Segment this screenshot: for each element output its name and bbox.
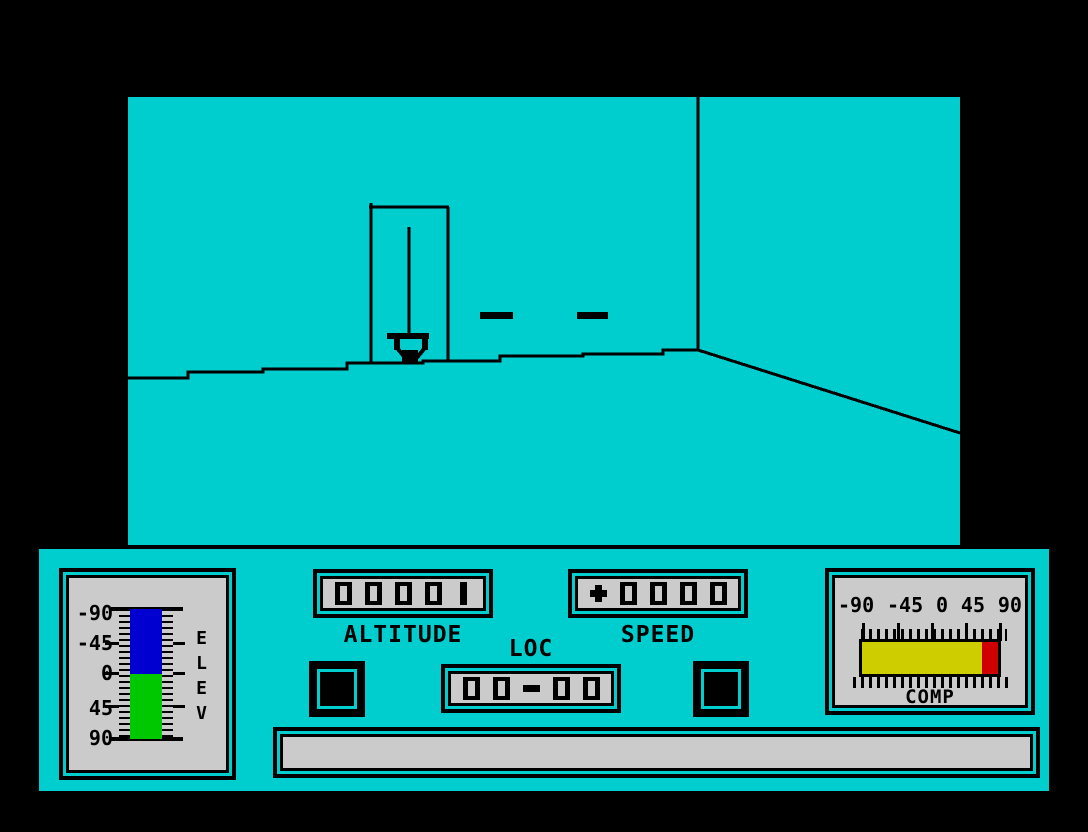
display-digit	[583, 677, 600, 700]
elev-scale-label: 45	[69, 698, 113, 719]
display-digit	[523, 677, 540, 700]
altitude-value	[320, 576, 486, 611]
loc-value	[448, 671, 614, 706]
elev-tick-comb-right	[162, 609, 173, 739]
elev-scale-label: -90	[69, 603, 113, 624]
elev-gauge-face: -90 -45 0 45 90 ELEV	[66, 575, 229, 773]
elev-tick-long	[105, 705, 119, 708]
panel-button-right[interactable]	[693, 661, 749, 717]
display-digit	[335, 582, 352, 605]
elev-tick-long	[105, 642, 119, 645]
elev-title: ELEV	[191, 628, 212, 728]
comp-scale-label: 90	[998, 595, 1022, 616]
display-digit	[425, 582, 442, 605]
display-digit	[395, 582, 412, 605]
display-digit	[620, 582, 637, 605]
game-viewport	[128, 97, 960, 545]
display-digit	[590, 582, 607, 605]
comp-title: COMP	[835, 686, 1025, 708]
elev-tick-long	[173, 642, 185, 645]
wireframe-scene	[128, 97, 960, 545]
message-bar	[273, 727, 1040, 778]
ground-dash-right	[577, 312, 608, 319]
display-digit	[710, 582, 727, 605]
altitude-display	[313, 569, 493, 618]
beacon-mast	[387, 227, 429, 363]
comp-bar-main-segment	[862, 642, 982, 674]
elev-bar-positive-segment	[130, 674, 162, 739]
loc-display	[441, 664, 621, 713]
display-digit	[493, 677, 510, 700]
panel-button-left[interactable]	[309, 661, 365, 717]
perspective-edge	[698, 350, 960, 433]
elev-tick-comb-left	[119, 609, 130, 739]
comp-gauge-face: -90 -45 0 45 90 COMP	[832, 575, 1028, 708]
elev-tick-long	[105, 672, 119, 675]
display-digit	[680, 582, 697, 605]
display-digit	[650, 582, 667, 605]
display-digit	[455, 582, 472, 605]
comp-scale-label: 45	[961, 595, 985, 616]
comp-scale-label: -90	[838, 595, 874, 616]
game-screen: { "colors": { "background": "#000000", "…	[0, 0, 1088, 832]
panel-button-left-inset	[317, 669, 357, 709]
ground-dash-left	[480, 312, 513, 319]
speed-display	[568, 569, 748, 618]
instrument-panel: -90 -45 0 45 90 ELEV ALTITUDE	[36, 546, 1052, 794]
speed-value	[575, 576, 741, 611]
comp-scale-label: 0	[936, 595, 948, 616]
elev-tick-long	[173, 672, 185, 675]
loc-label: LOC	[441, 637, 621, 661]
comp-gauge: -90 -45 0 45 90 COMP	[825, 568, 1035, 715]
display-digit	[553, 677, 570, 700]
elev-bar	[130, 609, 162, 739]
comp-scale: -90 -45 0 45 90	[838, 595, 1022, 616]
elev-gauge: -90 -45 0 45 90 ELEV	[59, 568, 236, 780]
comp-bar	[859, 639, 1001, 677]
comp-scale-label: -45	[887, 595, 923, 616]
comp-bar-marker-segment	[982, 642, 998, 674]
display-digit	[463, 677, 480, 700]
elev-bar-negative-segment	[130, 609, 162, 674]
panel-button-right-inset	[701, 669, 741, 709]
beacon-base	[402, 350, 418, 363]
display-digit	[365, 582, 382, 605]
message-bar-text	[280, 734, 1033, 771]
elev-scale-label: 90	[69, 728, 113, 749]
elev-tick-long	[173, 705, 185, 708]
